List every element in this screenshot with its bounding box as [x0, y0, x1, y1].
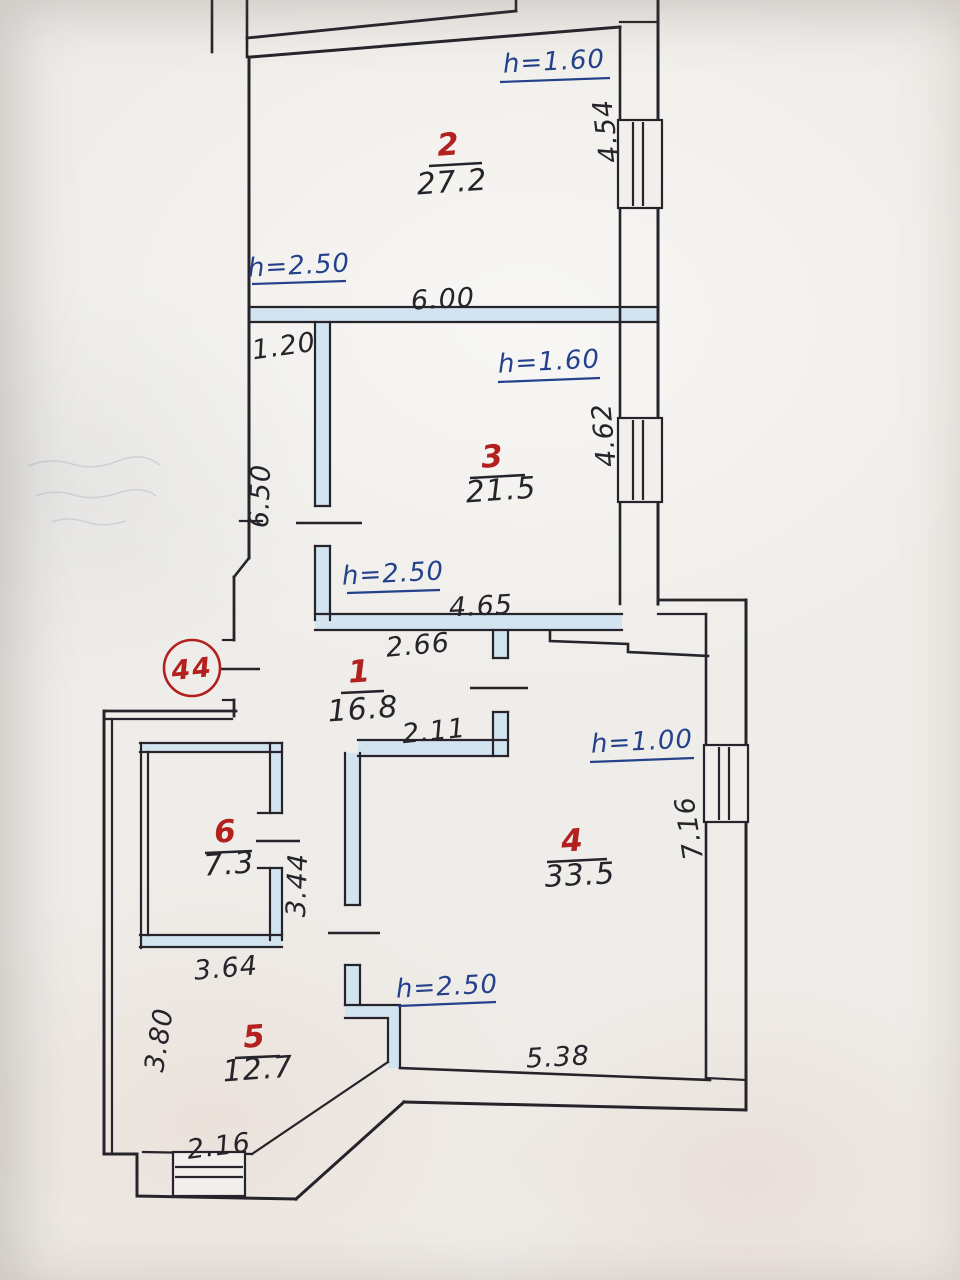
dim-room5-left: 3.80 [139, 1006, 180, 1074]
dim-strip-width: 1.20 [250, 327, 318, 367]
room-4-area: 33.5 [544, 856, 617, 895]
room-5-number: 5 [242, 1018, 266, 1055]
unit-number: 44 [169, 652, 215, 687]
dim-room3-width: 4.65 [448, 589, 514, 623]
height-room4-lower: h=2.50 [395, 969, 499, 1004]
window-room2-right [618, 120, 662, 208]
room-number-underlines [205, 163, 607, 1058]
height-room2-lower: h=2.50 [247, 248, 351, 283]
room-5-area: 12.7 [222, 1050, 295, 1090]
height-room3-upper: h=1.60 [497, 344, 601, 379]
height-label-underlines [252, 78, 694, 1006]
dim-strip-height: 6.50 [244, 463, 277, 528]
dim-room2-width: 6.00 [410, 282, 476, 316]
bleed-through-scribbles [28, 457, 160, 525]
room-6-area: 7.3 [203, 845, 256, 883]
height-room3-lower: h=2.50 [341, 556, 445, 591]
dim-room6-bottom: 3.64 [193, 950, 260, 986]
window-room3-right [618, 418, 662, 502]
room-1-area: 16.8 [327, 690, 400, 730]
room-6-number: 6 [213, 813, 237, 850]
room-2-area: 27.2 [416, 163, 489, 203]
room-3-area: 21.5 [465, 471, 538, 511]
dim-room6-right: 3.44 [281, 852, 314, 917]
dim-room4-bottom: 5.38 [525, 1040, 591, 1074]
floor-plan-drawing: 44 2 3 1 4 6 5 27.2 21.5 16.8 33.5 7.3 1… [0, 0, 960, 1280]
room-2-number: 2 [436, 126, 460, 163]
scanned-floor-plan-page: 44 2 3 1 4 6 5 27.2 21.5 16.8 33.5 7.3 1… [0, 0, 960, 1280]
room-3-number: 3 [480, 438, 504, 475]
height-room2-upper: h=1.60 [502, 44, 606, 79]
dim-hall-top: 2.66 [385, 627, 452, 663]
dim-room3-right: 4.62 [586, 402, 622, 469]
room-1-number: 1 [347, 653, 371, 690]
window-room4-right [704, 745, 748, 822]
height-room4-upper: h=1.00 [590, 724, 694, 759]
room-4-number: 4 [559, 822, 584, 859]
